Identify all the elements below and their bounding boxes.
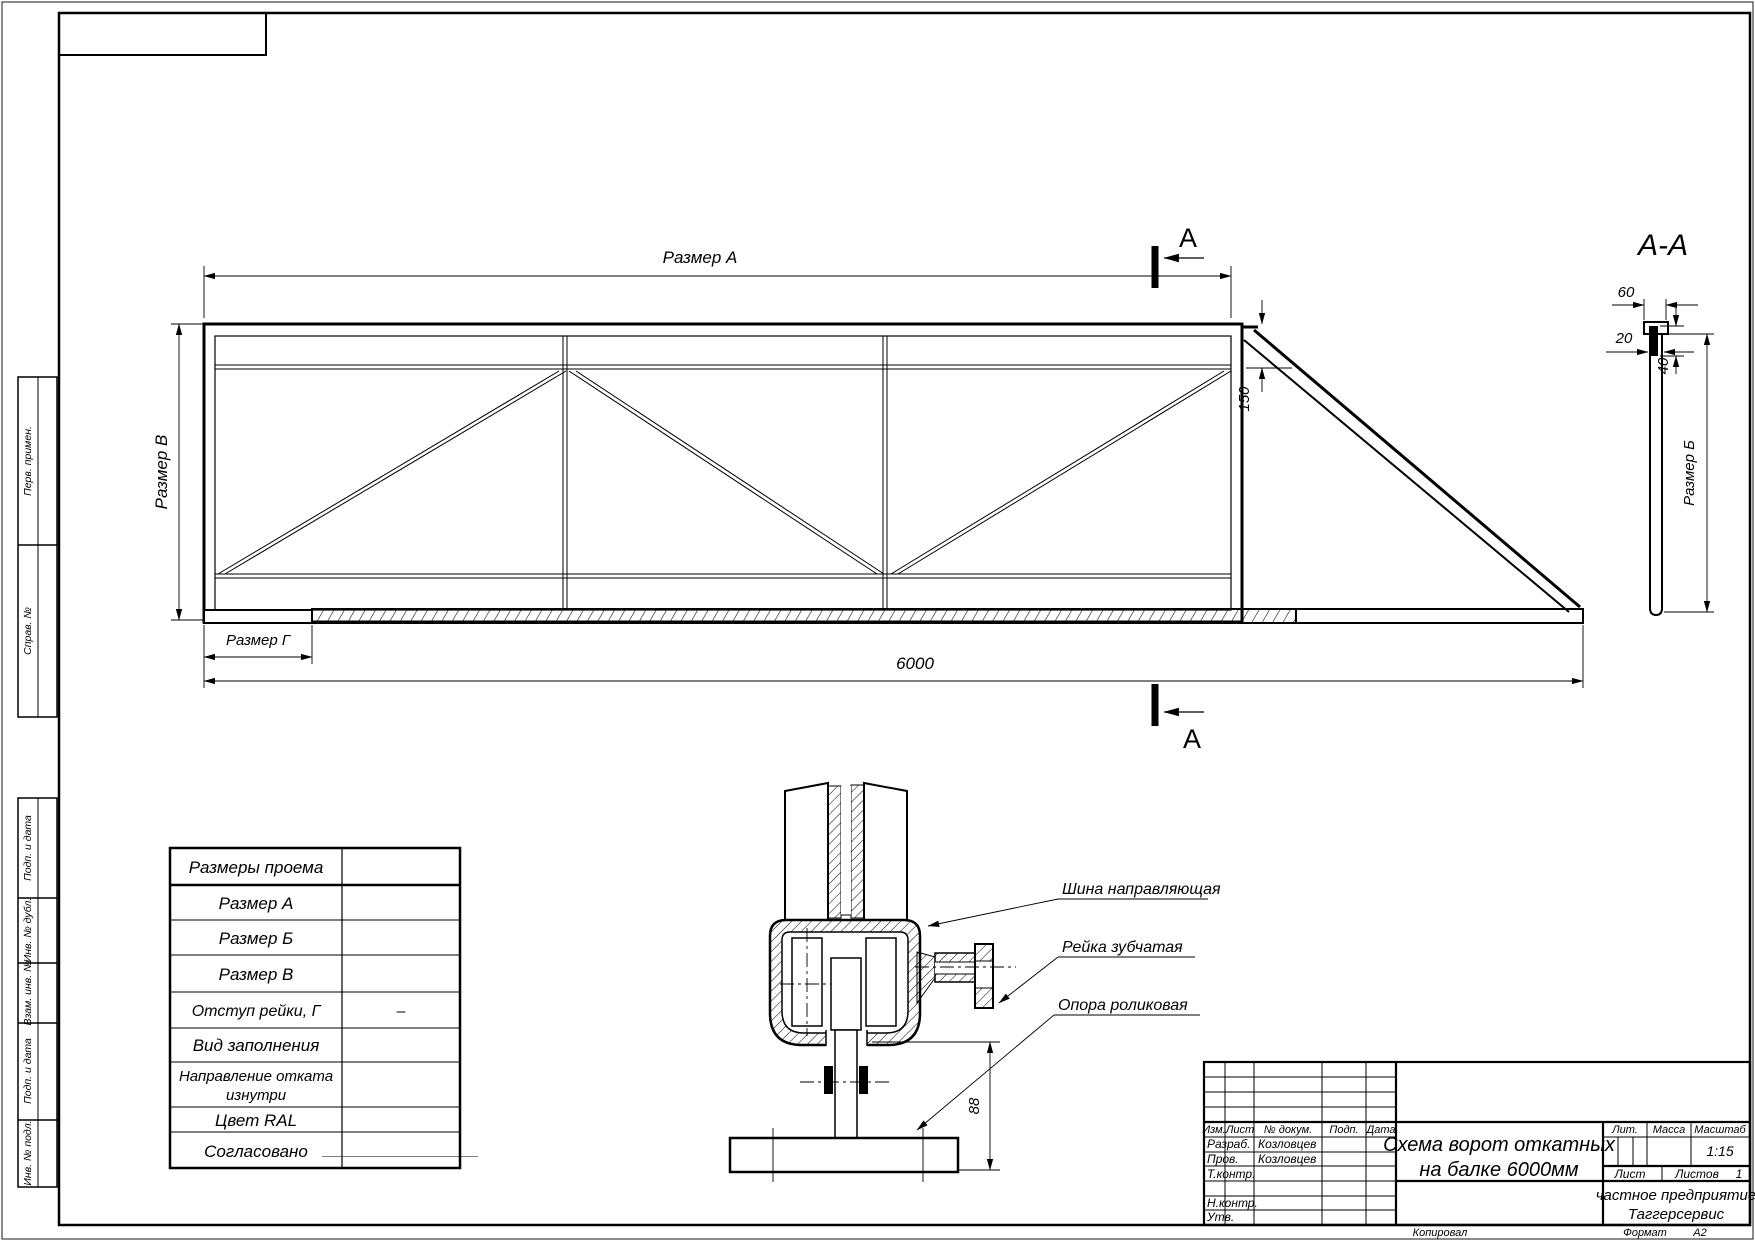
dim-razmer-b: Размер Б	[1681, 440, 1698, 506]
dim-razmer-v: Размер В	[152, 435, 171, 510]
tb-name-prov: Козловцев	[1258, 1152, 1316, 1166]
dim-150: 150	[1236, 386, 1253, 412]
tb-title-line2: на балке 6000мм	[1419, 1159, 1578, 1181]
post-right-wall	[864, 783, 907, 920]
tb-sheets-count: 1	[1736, 1167, 1743, 1181]
spec-value-soglasovano: ____________________	[321, 1142, 479, 1158]
section-bottom-cap	[1650, 600, 1662, 615]
spec-row-zapolnenie: Вид заполнения	[193, 1036, 320, 1055]
tb-org-line2: Таггерсервис	[1628, 1206, 1725, 1223]
spec-row-napravlenie-1: Направление отката	[179, 1068, 333, 1085]
bottom-copied-label: Копировал	[1413, 1227, 1468, 1239]
gost-drawing-svg: Перв. примен. Справ. № Подп. и дата Инв.…	[0, 0, 1755, 1241]
tb-masshtab-label: Масштаб	[1694, 1124, 1746, 1136]
side-label-podp-data-1: Подп. и дата	[22, 815, 34, 881]
side-panel: Перв. примен. Справ. № Подп. и дата Инв.…	[18, 377, 57, 1187]
side-label-vzam-inv: Взам. инв. №	[22, 961, 34, 1026]
spec-table: Размеры проема Размер А Размер Б Размер …	[170, 848, 479, 1168]
side-label-inv-dubl: Инв. № дубл.	[22, 898, 34, 963]
tb-lit-label: Лит.	[1611, 1124, 1638, 1136]
spec-row-razmer-b: Размер Б	[219, 929, 293, 948]
tb-role-nkontr: Н.контр.	[1207, 1196, 1258, 1210]
gate-elevation-view	[204, 324, 1583, 623]
spec-row-soglasovano: Согласовано	[204, 1142, 308, 1161]
tb-scale-value: 1:15	[1706, 1143, 1733, 1159]
tb-name-razrab: Козловцев	[1258, 1137, 1316, 1151]
corner-stamp-box	[59, 13, 266, 55]
beam-detail-view: 88 Шина направляющая Рейка зубчатая Опор…	[730, 783, 1221, 1182]
section-marker-a-bottom: А	[1183, 724, 1201, 754]
tb-org-line1: частное предприятие	[1596, 1187, 1755, 1204]
side-label-perv-primen: Перв. примен.	[22, 426, 34, 496]
label-opora-rolikovaya: Опора роликовая	[1058, 997, 1188, 1014]
dim-60: 60	[1618, 284, 1635, 301]
support-base-plate	[730, 1138, 958, 1172]
tb-col-podp: Подп.	[1329, 1124, 1358, 1136]
side-label-podp-data-2: Подп. и дата	[22, 1038, 34, 1104]
bottom-format-value: А2	[1692, 1227, 1706, 1239]
spec-row-razmer-a: Размер А	[219, 894, 294, 913]
gear-rack-strip	[312, 609, 1296, 623]
rack-offset-segment	[204, 610, 312, 623]
section-marker-a-top: А	[1179, 223, 1197, 253]
side-label-sprav-no: Справ. №	[22, 607, 34, 655]
tb-role-tkontr: Т.контр.	[1207, 1167, 1255, 1181]
tb-col-list: Лист	[1225, 1124, 1254, 1136]
drawing-sheet: Перв. примен. Справ. № Подп. и дата Инв.…	[0, 0, 1755, 1241]
support-stem	[835, 1030, 857, 1138]
tb-col-dokum: № докум.	[1264, 1124, 1312, 1136]
dim-88: 88	[966, 1097, 983, 1114]
spec-row-napravlenie-2: изнутри	[226, 1087, 287, 1104]
spec-row-otstup: Отступ рейки, Г	[192, 1003, 322, 1020]
gate-dimensions: Размер А Размер В Размер Г 6000 150 А А	[152, 223, 1583, 754]
spec-row-header: Размеры проема	[189, 858, 324, 877]
dim-6000: 6000	[896, 654, 934, 673]
tb-role-razrab: Разраб.	[1207, 1137, 1250, 1151]
dim-20: 20	[1615, 330, 1633, 347]
spec-row-cvet-ral: Цвет RAL	[215, 1111, 297, 1130]
dim-40: 40	[1655, 357, 1672, 374]
tail-bottom-bar	[1296, 609, 1583, 623]
label-reika-zubchataya: Рейка зубчатая	[1062, 939, 1183, 956]
tb-sheets-label: Листов	[1674, 1167, 1719, 1181]
tb-sheet-label: Лист	[1614, 1167, 1646, 1181]
tb-role-prov: Пров.	[1207, 1152, 1239, 1166]
title-block: Изм. Лист № докум. Подп. Дата Разраб. Ко…	[1202, 1062, 1755, 1225]
dim-razmer-a: Размер А	[663, 248, 738, 267]
section-aa-view: А-А 60 20 40 Размер Б	[1606, 229, 1714, 615]
tail-brace-outer	[1254, 330, 1580, 607]
tb-col-izm: Изм.	[1202, 1124, 1225, 1136]
post-left-wall	[785, 783, 828, 920]
tb-massa-label: Масса	[1653, 1124, 1686, 1136]
tb-title-line1: Схема ворот откатных	[1383, 1134, 1616, 1156]
rack-weld	[917, 952, 935, 1003]
section-aa-title: А-А	[1636, 229, 1688, 262]
spec-row-razmer-v: Размер В	[219, 965, 294, 984]
side-label-inv-podl: Инв. № подл.	[22, 1120, 34, 1185]
roller-carriage	[831, 958, 861, 1030]
tb-role-utv: Утв.	[1206, 1210, 1234, 1224]
label-shina-napravlyayushchaya: Шина направляющая	[1062, 881, 1221, 898]
roller-right	[866, 938, 896, 1026]
dim-razmer-g: Размер Г	[226, 632, 292, 649]
spec-value-otstup: –	[396, 1003, 406, 1020]
bottom-format-label: Формат	[1623, 1227, 1667, 1239]
tail-brace-inner	[1244, 340, 1569, 612]
